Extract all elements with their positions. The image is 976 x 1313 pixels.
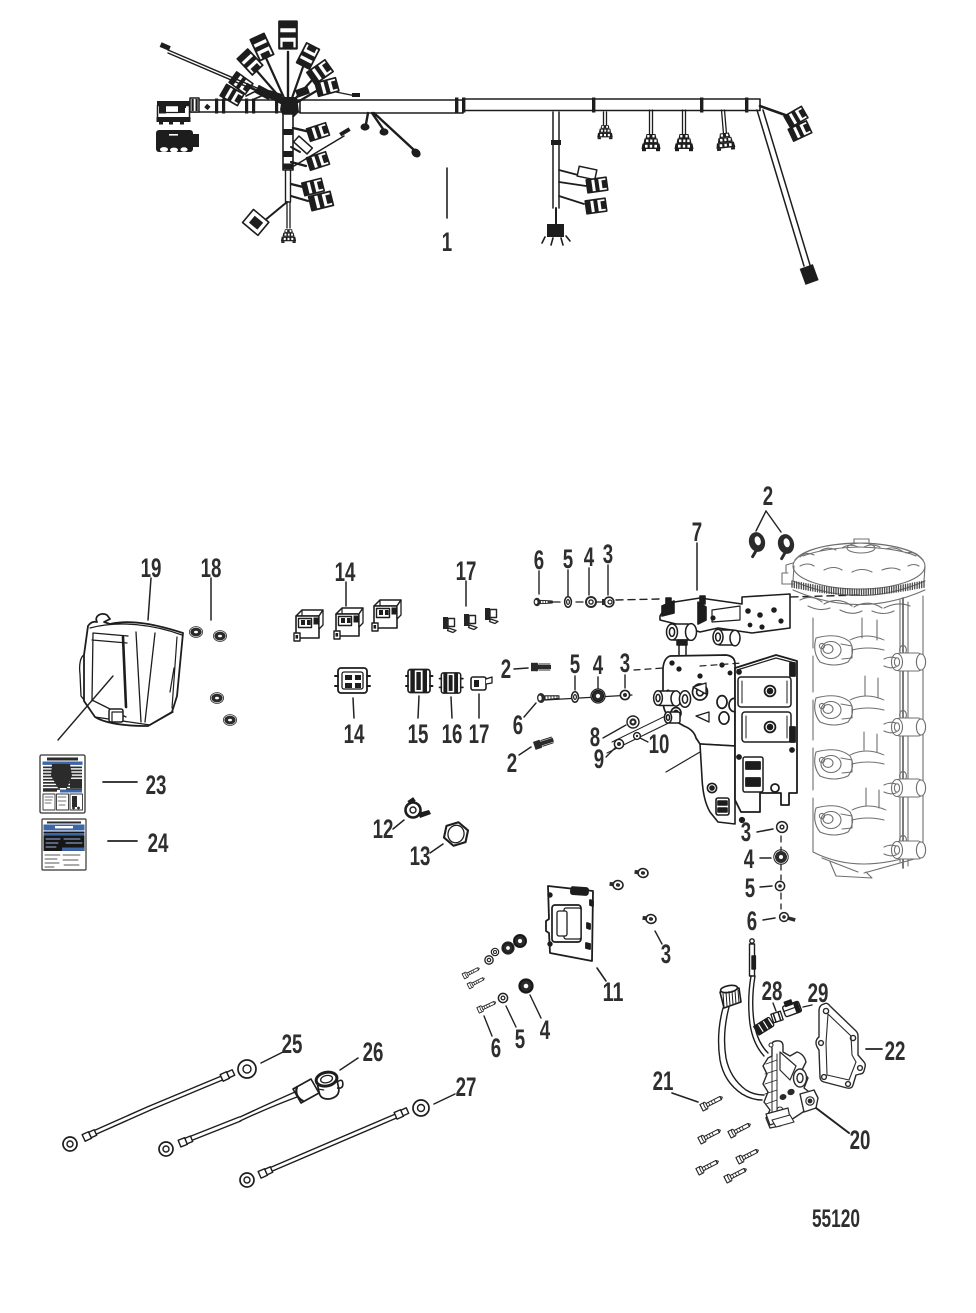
svg-text:4: 4 xyxy=(593,650,603,680)
svg-text:9: 9 xyxy=(594,744,604,774)
svg-text:7: 7 xyxy=(692,517,702,547)
svg-text:2: 2 xyxy=(763,481,773,511)
svg-text:15: 15 xyxy=(408,719,429,749)
svg-text:16: 16 xyxy=(442,719,463,749)
svg-text:3: 3 xyxy=(741,817,751,847)
svg-text:2: 2 xyxy=(501,654,511,684)
svg-text:4: 4 xyxy=(584,542,594,572)
svg-text:5: 5 xyxy=(745,873,755,903)
svg-text:17: 17 xyxy=(469,719,490,749)
svg-text:4: 4 xyxy=(540,1015,550,1045)
svg-text:4: 4 xyxy=(744,844,754,874)
svg-text:5: 5 xyxy=(515,1024,525,1054)
svg-text:6: 6 xyxy=(513,710,523,740)
svg-text:14: 14 xyxy=(344,719,365,749)
svg-text:3: 3 xyxy=(620,648,630,678)
svg-text:29: 29 xyxy=(808,978,829,1008)
svg-text:20: 20 xyxy=(850,1125,871,1155)
svg-text:13: 13 xyxy=(410,841,431,871)
svg-text:6: 6 xyxy=(747,906,757,936)
svg-text:26: 26 xyxy=(363,1037,384,1067)
svg-text:14: 14 xyxy=(335,557,356,587)
svg-text:5: 5 xyxy=(563,544,573,574)
svg-text:55120: 55120 xyxy=(812,1205,860,1233)
svg-text:24: 24 xyxy=(148,828,169,858)
svg-text:27: 27 xyxy=(456,1072,477,1102)
svg-text:1: 1 xyxy=(442,227,452,257)
svg-text:6: 6 xyxy=(534,545,544,575)
svg-text:12: 12 xyxy=(373,814,394,844)
svg-text:6: 6 xyxy=(491,1033,501,1063)
svg-text:22: 22 xyxy=(885,1036,906,1066)
svg-text:17: 17 xyxy=(456,556,477,586)
svg-text:3: 3 xyxy=(603,539,613,569)
svg-text:18: 18 xyxy=(201,553,222,583)
svg-text:5: 5 xyxy=(570,649,580,679)
svg-text:2: 2 xyxy=(507,748,517,778)
svg-text:21: 21 xyxy=(653,1066,674,1096)
svg-text:10: 10 xyxy=(649,729,670,759)
svg-text:28: 28 xyxy=(762,976,783,1006)
svg-text:19: 19 xyxy=(141,553,162,583)
svg-text:23: 23 xyxy=(146,770,167,800)
svg-text:25: 25 xyxy=(282,1029,303,1059)
